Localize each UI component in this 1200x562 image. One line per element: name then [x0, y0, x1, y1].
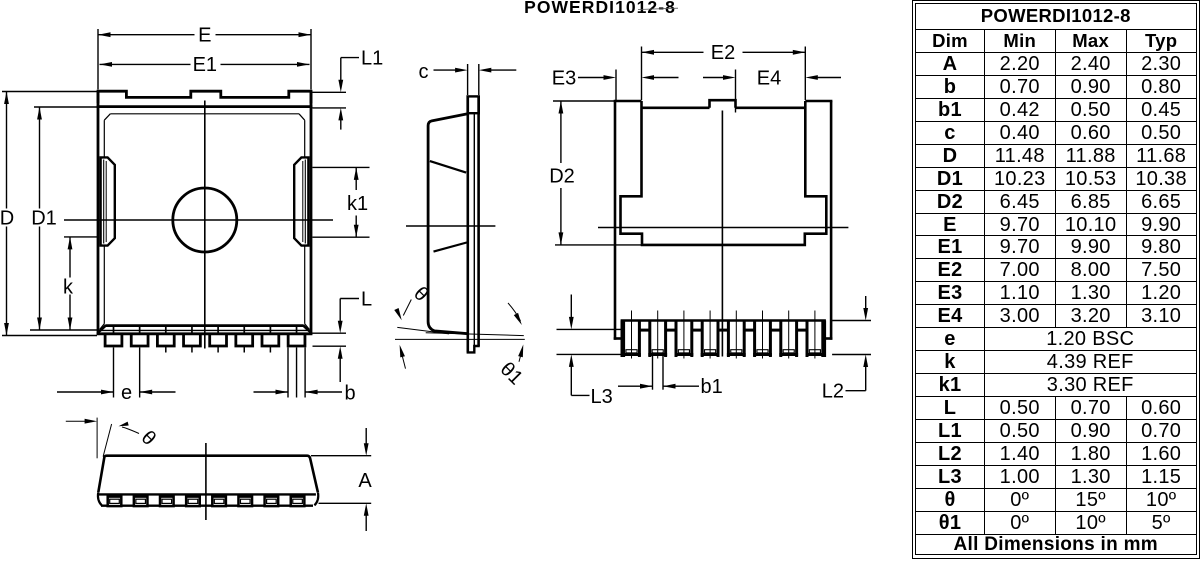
svg-text:L1: L1	[361, 48, 383, 70]
svg-text:θ1: θ1	[496, 358, 527, 389]
svg-text:L3: L3	[591, 386, 613, 408]
svg-text:L2: L2	[822, 381, 844, 403]
svg-text:E4: E4	[757, 67, 781, 89]
svg-text:E1: E1	[193, 54, 217, 76]
svg-text:b: b	[344, 383, 355, 405]
svg-text:E2: E2	[711, 42, 735, 64]
svg-text:D1: D1	[31, 208, 57, 230]
svg-text:b1: b1	[701, 376, 723, 398]
svg-text:θ: θ	[137, 427, 160, 450]
svg-text:A: A	[358, 470, 372, 492]
svg-text:c: c	[419, 61, 429, 83]
svg-text:POWERDI1012-8: POWERDI1012-8	[524, 0, 676, 17]
svg-text:e: e	[121, 382, 132, 404]
svg-text:D2: D2	[549, 166, 575, 188]
svg-text:D: D	[0, 208, 14, 230]
svg-text:E: E	[198, 25, 211, 47]
svg-text:k: k	[63, 277, 74, 299]
svg-text:k1: k1	[347, 193, 368, 215]
svg-text:E3: E3	[552, 67, 576, 89]
svg-text:L: L	[361, 289, 372, 311]
